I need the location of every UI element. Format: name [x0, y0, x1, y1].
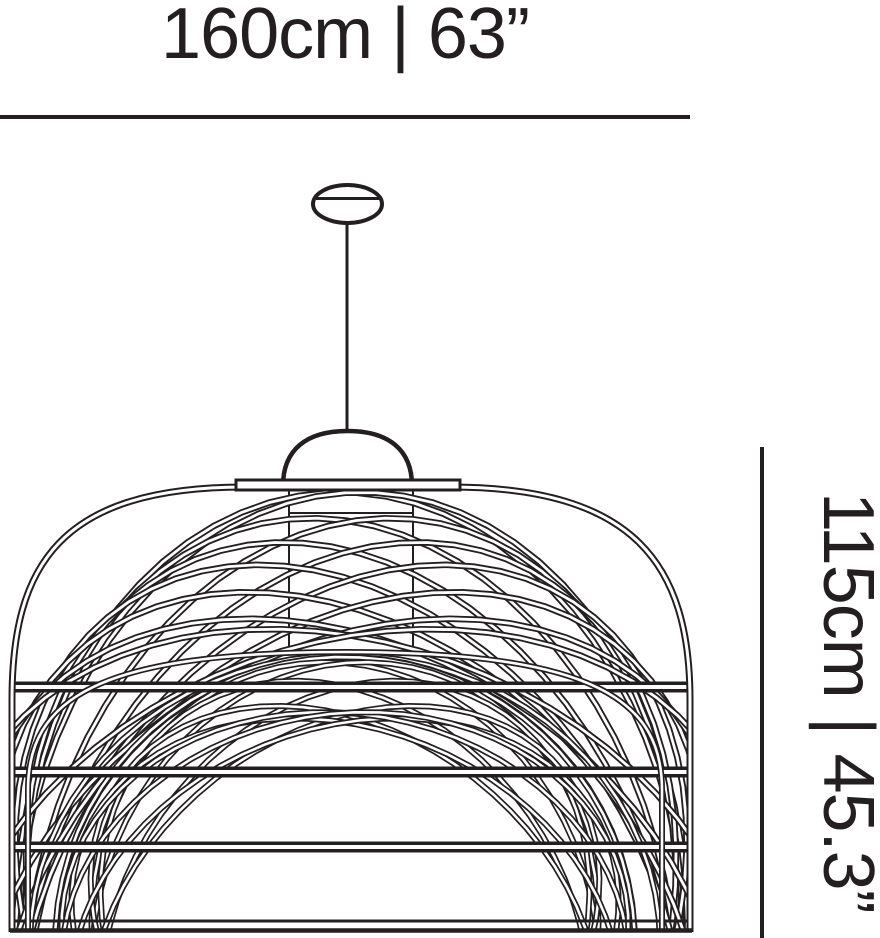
- pendant-lamp-drawing: [0, 0, 880, 938]
- dimension-diagram: 160cm | 63” 115cm | 45.3”: [0, 0, 880, 938]
